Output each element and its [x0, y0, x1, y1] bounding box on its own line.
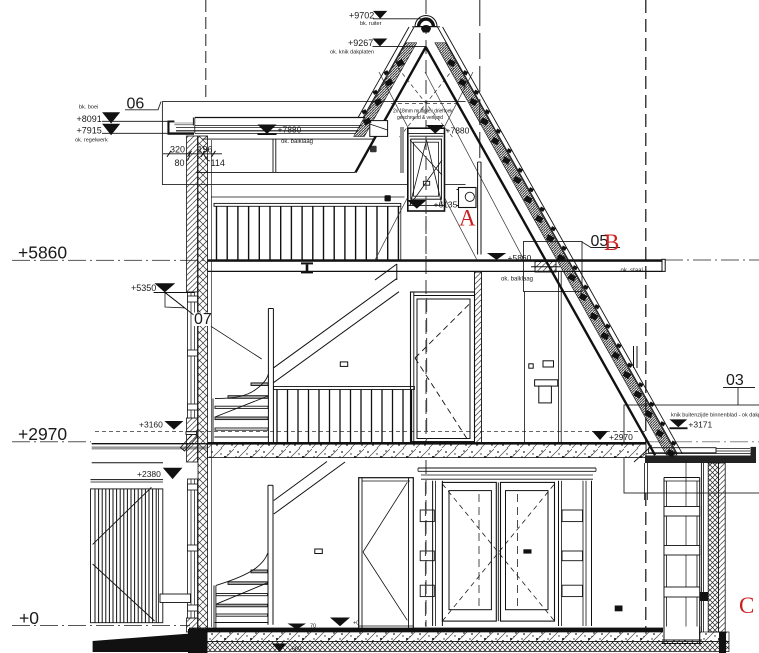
svg-text:320: 320: [170, 145, 185, 155]
svg-text:2x 18mm multiplex driehoek: 2x 18mm multiplex driehoek: [393, 109, 453, 115]
svg-text:+5860: +5860: [18, 243, 67, 263]
svg-text:+9702: +9702: [349, 11, 374, 21]
svg-text:geschroefd & verlijmd: geschroefd & verlijmd: [397, 115, 443, 121]
svg-text:bk. boei: bk. boei: [79, 105, 98, 111]
svg-text:-600: -600: [290, 647, 301, 653]
svg-text:ok. staal: ok. staal: [621, 268, 643, 274]
svg-text:+7880: +7880: [446, 125, 470, 135]
svg-text:ok. knik dakplaten: ok. knik dakplaten: [330, 49, 374, 55]
svg-text:196: 196: [198, 145, 213, 155]
svg-text:70: 70: [310, 624, 316, 630]
svg-text:bk. ruiter: bk. ruiter: [360, 21, 382, 27]
svg-text:+3171: +3171: [688, 420, 712, 430]
svg-text:03: 03: [726, 372, 744, 389]
svg-text:07: 07: [194, 311, 212, 328]
svg-text:+2970: +2970: [18, 424, 67, 444]
svg-text:114: 114: [211, 158, 225, 168]
svg-text:B: B: [604, 230, 619, 255]
svg-text:+5350: +5350: [131, 283, 156, 293]
svg-text:+0: +0: [353, 621, 359, 627]
svg-text:ok. balklaag: ok. balklaag: [501, 276, 533, 282]
svg-text:ok. balklaag: ok. balklaag: [281, 139, 313, 145]
svg-text:80: 80: [175, 158, 185, 168]
svg-text:+2380: +2380: [137, 469, 161, 479]
svg-text:+7880: +7880: [278, 124, 302, 134]
svg-text:knik buitenzijde binnenblad -: knik buitenzijde binnenblad - ok dakp: [671, 413, 759, 419]
svg-text:A: A: [459, 206, 476, 231]
svg-text:+3160: +3160: [139, 420, 163, 430]
svg-text:+2970: +2970: [609, 432, 633, 442]
svg-text:+8091: +8091: [77, 114, 102, 124]
svg-text:+9267: +9267: [348, 38, 373, 48]
svg-text:ok. regelwerk: ok. regelwerk: [75, 137, 108, 143]
svg-text:+5860: +5860: [508, 253, 532, 263]
svg-text:+7915: +7915: [77, 125, 102, 135]
svg-text:C: C: [739, 593, 754, 618]
svg-text:+6135: +6135: [434, 199, 458, 209]
